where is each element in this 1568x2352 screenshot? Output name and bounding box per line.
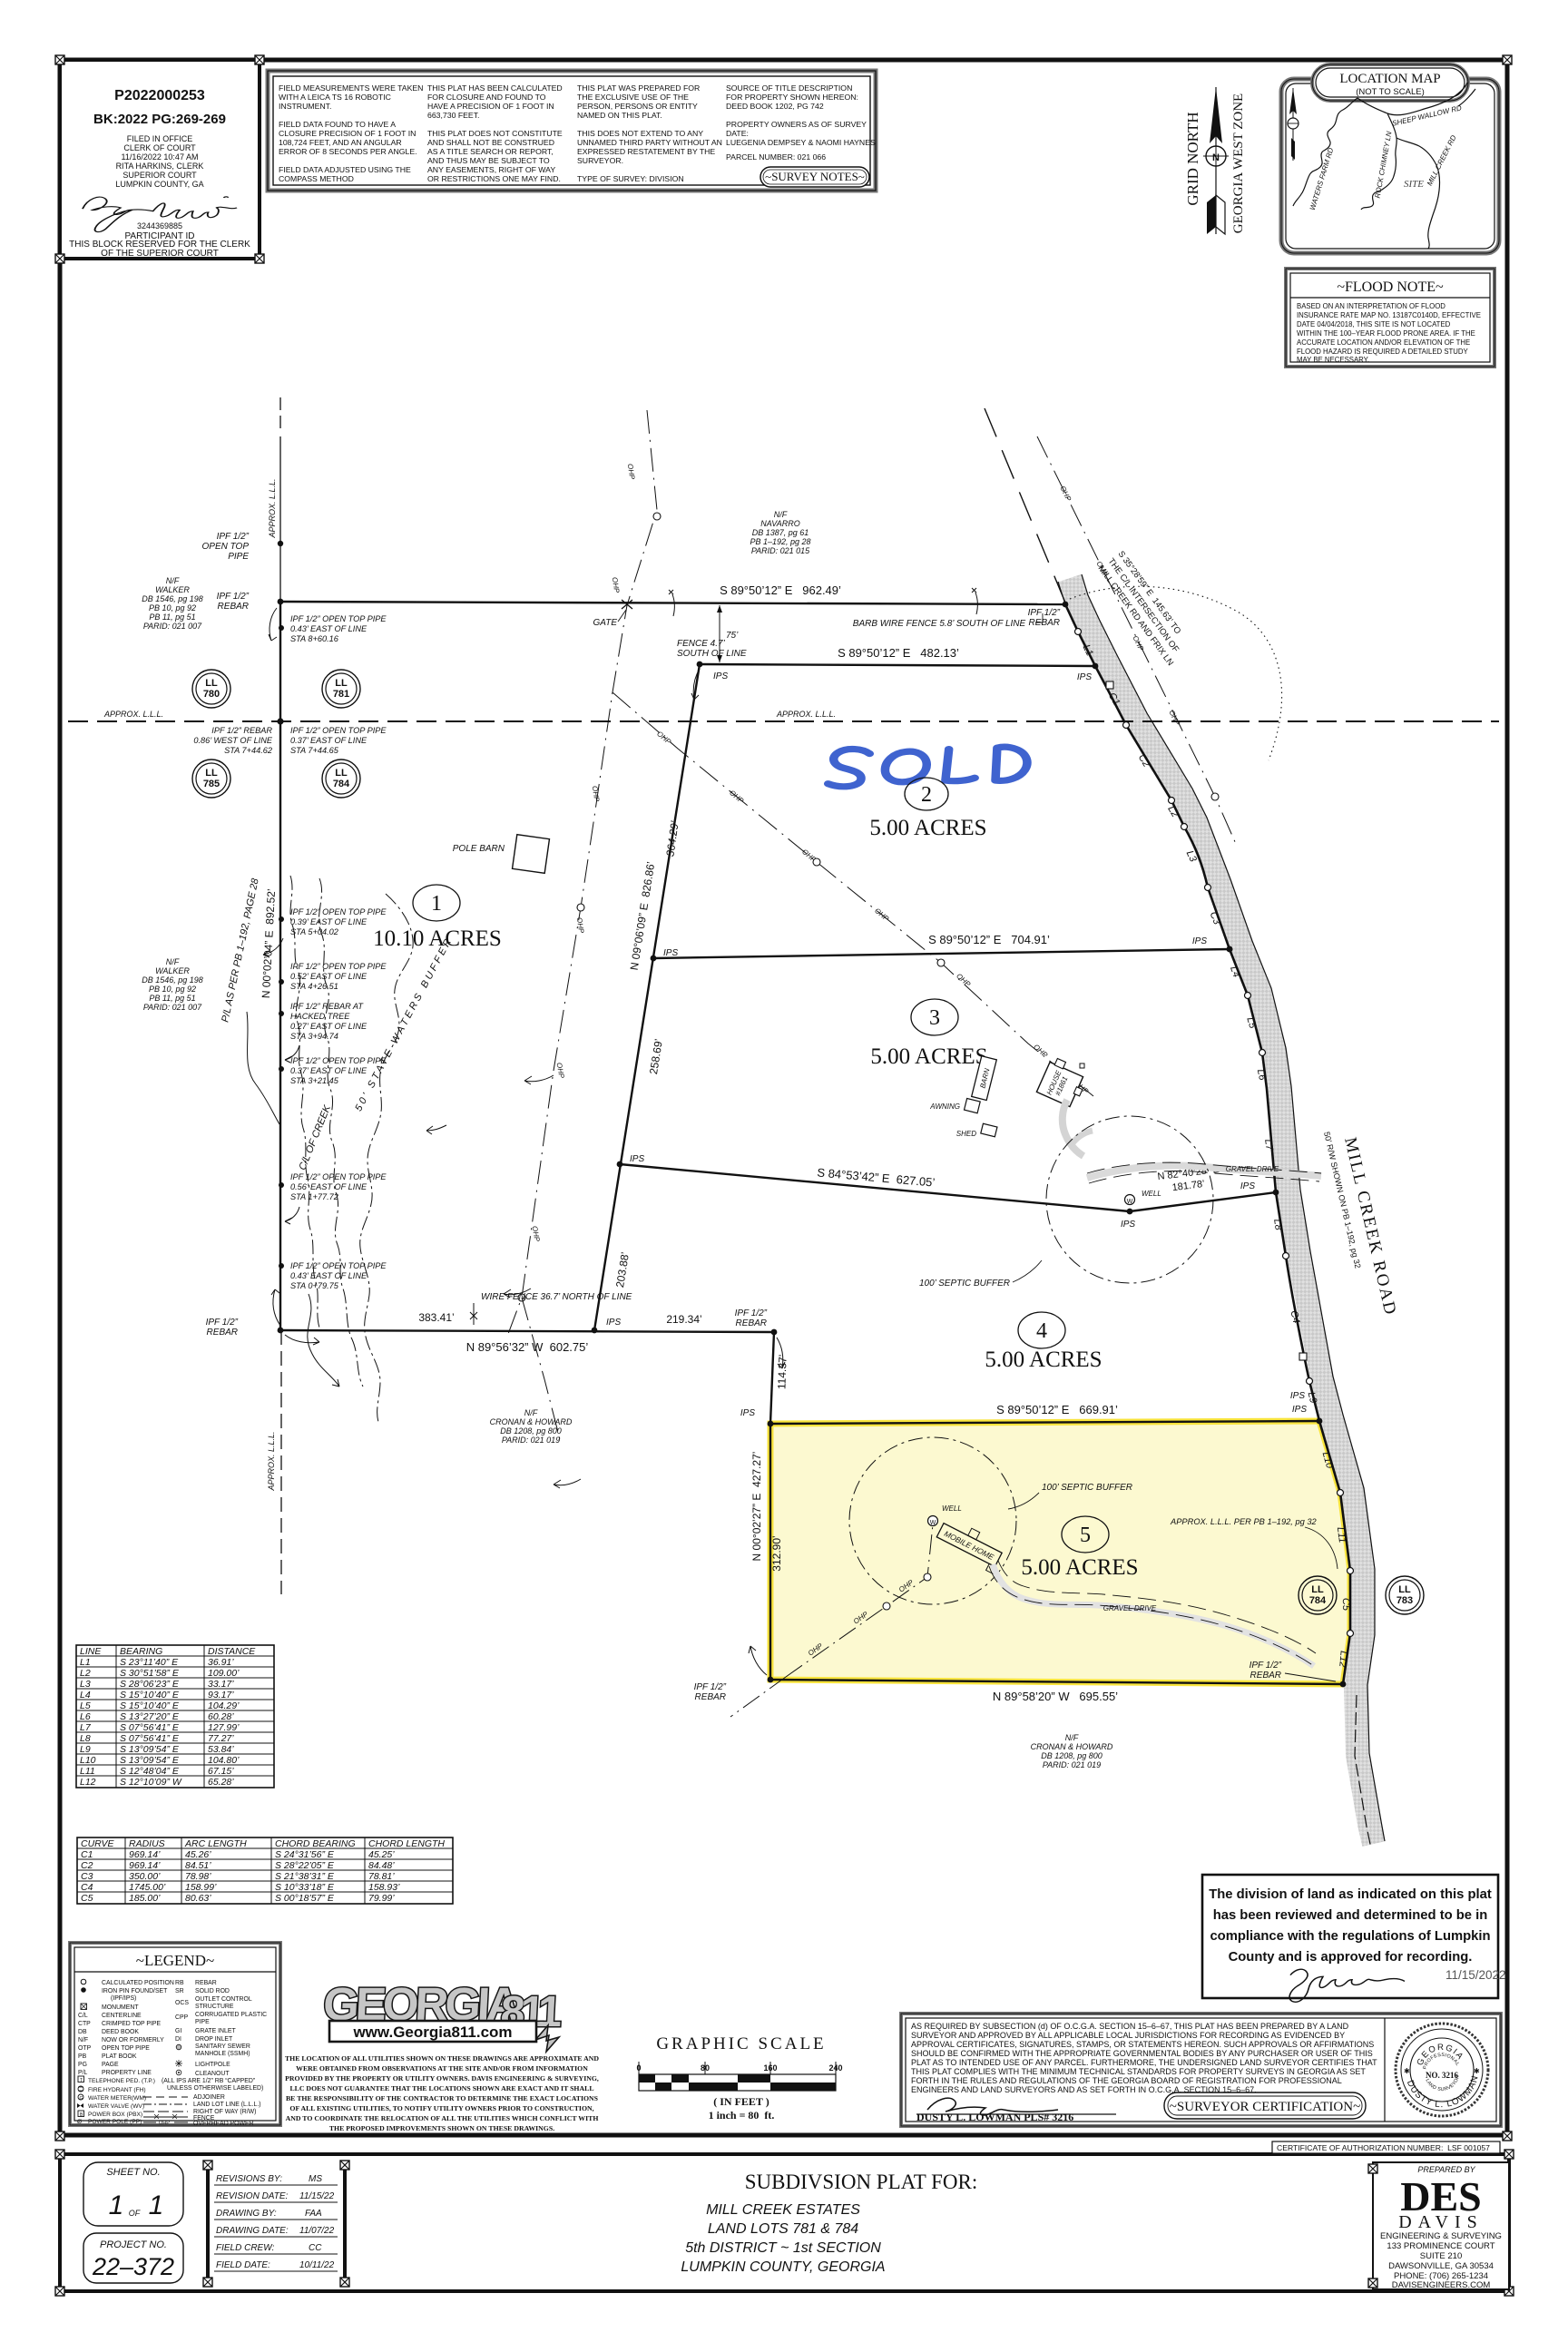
svg-text:PB: PB xyxy=(78,2053,87,2060)
svg-text:IPF 1/2”: IPF 1/2” xyxy=(1028,608,1061,618)
svg-text:~SURVEY NOTES~: ~SURVEY NOTES~ xyxy=(765,170,865,183)
svg-text:S 28°22’05” E: S 28°22’05” E xyxy=(275,1860,335,1871)
svg-text:0.37’ EAST OF LINE: 0.37’ EAST OF LINE xyxy=(290,736,367,745)
svg-text:CRONAN & HOWARD: CRONAN & HOWARD xyxy=(1031,1742,1113,1751)
svg-text:1: 1 xyxy=(109,2190,124,2220)
svg-text:DB 1208, pg 800: DB 1208, pg 800 xyxy=(500,1426,562,1436)
svg-text:0.37’ EAST OF LINE: 0.37’ EAST OF LINE xyxy=(290,1066,367,1075)
svg-text:IPS: IPS xyxy=(1192,936,1207,946)
svg-text:DAVISENGINEERS.COM: DAVISENGINEERS.COM xyxy=(1392,2280,1491,2290)
svg-text:STA 1+77.72: STA 1+77.72 xyxy=(290,1192,338,1201)
svg-text:C3: C3 xyxy=(81,1871,93,1882)
svg-text:SURVEYOR AND APPROVED BY ALL A: SURVEYOR AND APPROVED BY ALL APPLICABLE … xyxy=(911,2031,1345,2040)
svg-text:383.41’: 383.41’ xyxy=(418,1311,454,1324)
svg-text:C4: C4 xyxy=(81,1882,93,1893)
svg-text:PG: PG xyxy=(78,2062,87,2068)
svg-text:IPS: IPS xyxy=(1290,1391,1305,1401)
svg-text:11/16/2022 10:47 AM: 11/16/2022 10:47 AM xyxy=(122,152,199,162)
svg-text:APPROVAL CERTIFICATES, SIGNATU: APPROVAL CERTIFICATES, SIGNATURES, STAMP… xyxy=(911,2040,1374,2049)
svg-text:0.39’ EAST OF LINE: 0.39’ EAST OF LINE xyxy=(290,917,367,926)
svg-text:663,730 FEET.: 663,730 FEET. xyxy=(427,111,479,120)
svg-text:ADJOINER: ADJOINER xyxy=(193,2094,225,2101)
svg-text:CRIMPED TOP PIPE: CRIMPED TOP PIPE xyxy=(102,2021,162,2027)
svg-text:L2: L2 xyxy=(80,1668,91,1679)
svg-text:45.25’: 45.25’ xyxy=(368,1849,395,1860)
svg-text:78.98’: 78.98’ xyxy=(185,1871,211,1882)
svg-text:STA 0+79.75: STA 0+79.75 xyxy=(290,1281,339,1290)
svg-text:IPF 1/2”: IPF 1/2” xyxy=(217,532,250,542)
svg-text:STA 3+94.74: STA 3+94.74 xyxy=(290,1032,338,1041)
svg-text:158.99’: 158.99’ xyxy=(185,1882,217,1893)
svg-text:APPROX. L.L.L.: APPROX. L.L.L. xyxy=(776,710,836,719)
svg-text:IPF 1/2” OPEN TOP PIPE: IPF 1/2” OPEN TOP PIPE xyxy=(290,907,387,916)
svg-text:WITH A LEICA TS 16 ROBOTIC: WITH A LEICA TS 16 ROBOTIC xyxy=(279,93,391,102)
svg-text:UNLESS OTHERWISE LABELED): UNLESS OTHERWISE LABELED) xyxy=(167,2085,263,2092)
svg-text:STA 5+04.02: STA 5+04.02 xyxy=(290,927,338,936)
svg-text:185.00’: 185.00’ xyxy=(129,1893,161,1904)
svg-text:AND TO COORDINATE THE RELOCATI: AND TO COORDINATE THE RELOCATION OF ALL … xyxy=(286,2114,599,2122)
svg-text:SANITARY SEWER: SANITARY SEWER xyxy=(195,2043,250,2050)
svg-text:GRATE INLET: GRATE INLET xyxy=(195,2028,236,2034)
svg-text:THE LOCATION OF ALL UTILITIES: THE LOCATION OF ALL UTILITIES SHOWN ON T… xyxy=(285,2054,599,2063)
svg-text:S 30°51’58” E: S 30°51’58” E xyxy=(120,1668,180,1679)
svg-text:WATER VALVE (WV): WATER VALVE (WV) xyxy=(88,2103,144,2110)
svg-text:THIS DOES NOT EXTEND TO ANY: THIS DOES NOT EXTEND TO ANY xyxy=(577,129,703,138)
svg-text:GRAVEL DRIVE: GRAVEL DRIVE xyxy=(1226,1165,1279,1173)
svg-text:L6: L6 xyxy=(80,1711,91,1722)
svg-text:PB 10, pg 92: PB 10, pg 92 xyxy=(149,603,196,612)
svg-text:L11: L11 xyxy=(1335,1526,1347,1543)
svg-text:✱: ✱ xyxy=(1404,2067,1410,2075)
svg-text:CTP: CTP xyxy=(78,2021,91,2027)
svg-text:OVERHEAD POWER: OVERHEAD POWER xyxy=(193,2121,254,2127)
svg-text:LUMPKIN COUNTY, GEORGIA: LUMPKIN COUNTY, GEORGIA xyxy=(681,2259,885,2275)
svg-text:BE THE RESPONSIBILITY OF THE C: BE THE RESPONSIBILITY OF THE CONTRACTOR … xyxy=(286,2094,598,2102)
svg-text:FIRE HYDRANT (FH): FIRE HYDRANT (FH) xyxy=(88,2087,146,2093)
svg-text:10.10 ACRES: 10.10 ACRES xyxy=(373,926,502,951)
svg-text:ANY EASEMENTS, RIGHT OF WAY: ANY EASEMENTS, RIGHT OF WAY xyxy=(427,165,555,174)
svg-text:~LEGEND~: ~LEGEND~ xyxy=(136,1952,214,1969)
svg-text:SITE: SITE xyxy=(1404,179,1424,190)
svg-text:AND SHALL NOT BE CONSTRUED: AND SHALL NOT BE CONSTRUED xyxy=(427,138,554,147)
svg-text:PARID: 021 007: PARID: 021 007 xyxy=(143,622,202,631)
svg-text:EXPRESSED RESTATEMENT BY THE: EXPRESSED RESTATEMENT BY THE xyxy=(577,147,715,156)
svg-text:1: 1 xyxy=(431,892,442,916)
svg-text:CURVE: CURVE xyxy=(81,1838,115,1849)
svg-text:APPROX. L.L.L.: APPROX. L.L.L. xyxy=(103,710,163,719)
svg-text:POWER BOX (PBX): POWER BOX (PBX) xyxy=(88,2112,142,2118)
svg-text:36.91’: 36.91’ xyxy=(208,1657,234,1668)
svg-text:11/07/22: 11/07/22 xyxy=(299,2226,335,2236)
svg-text:TELEPHONE PED. (T.P.): TELEPHONE PED. (T.P.) xyxy=(88,2078,155,2084)
svg-text:785: 785 xyxy=(203,779,220,789)
svg-text:REBAR: REBAR xyxy=(207,1328,238,1338)
svg-text:LUEGENIA DEMPSEY & NAOMI HAYNE: LUEGENIA DEMPSEY & NAOMI HAYNES xyxy=(726,138,876,147)
svg-text:GATE: GATE xyxy=(593,618,618,628)
svg-text:(NOT TO SCALE): (NOT TO SCALE) xyxy=(1356,87,1425,97)
svg-text:✱: ✱ xyxy=(1474,2067,1480,2075)
svg-text:L9: L9 xyxy=(80,1744,91,1755)
svg-text:DI: DI xyxy=(175,2036,181,2043)
svg-text:WATER METER(WM): WATER METER(WM) xyxy=(88,2095,146,2102)
svg-text:S 00°18’57” E: S 00°18’57” E xyxy=(275,1893,335,1904)
svg-text:LL: LL xyxy=(335,678,348,689)
svg-text:11/15/2022: 11/15/2022 xyxy=(1445,1968,1506,1982)
svg-text:GEORGIA WEST ZONE: GEORGIA WEST ZONE xyxy=(1231,93,1246,233)
svg-text:P2022000253: P2022000253 xyxy=(114,88,205,103)
svg-text:WELL: WELL xyxy=(1142,1190,1161,1198)
svg-text:S 13°09’54” E: S 13°09’54” E xyxy=(120,1744,180,1755)
svg-text:IPF 1/2” REBAR AT: IPF 1/2” REBAR AT xyxy=(290,1002,364,1011)
svg-text:IPF 1/2” REBAR: IPF 1/2” REBAR xyxy=(211,726,272,735)
svg-text:( IN FEET ): ( IN FEET ) xyxy=(713,2095,769,2108)
svg-text:RADIUS: RADIUS xyxy=(129,1838,165,1849)
svg-text:ARC LENGTH: ARC LENGTH xyxy=(184,1838,247,1849)
svg-text:S 23°11’40” E: S 23°11’40” E xyxy=(120,1657,179,1668)
svg-text:S 89°50’12” E 669.91’: S 89°50’12” E 669.91’ xyxy=(996,1403,1118,1416)
svg-text:PIPE: PIPE xyxy=(195,2019,210,2025)
svg-text:BARB WIRE FENCE 5.8’ SOUTH OF: BARB WIRE FENCE 5.8’ SOUTH OF LINE xyxy=(853,619,1026,629)
svg-text:compliance with the regulation: compliance with the regulations of Lumpk… xyxy=(1210,1929,1490,1944)
svg-text:22–372: 22–372 xyxy=(92,2253,174,2280)
svg-text:S 28°06’23” E: S 28°06’23” E xyxy=(120,1679,180,1690)
svg-text:MS: MS xyxy=(309,2174,322,2184)
svg-text:784: 784 xyxy=(333,779,350,789)
svg-text:SR: SR xyxy=(175,1988,184,1994)
svg-text:THE PROPOSED IMPROVEMENTS SHOW: THE PROPOSED IMPROVEMENTS SHOWN ON THESE… xyxy=(329,2124,554,2132)
svg-text:LUMPKIN COUNTY, GA: LUMPKIN COUNTY, GA xyxy=(115,180,203,189)
svg-text:78.81’: 78.81’ xyxy=(368,1871,395,1882)
svg-text:PROVIDED BY THE PROPERTY OR UT: PROVIDED BY THE PROPERTY OR UTILITY OWNE… xyxy=(285,2074,599,2082)
svg-text:FLOOD HAZARD IS REQUIRED A DET: FLOOD HAZARD IS REQUIRED A DETAILED STUD… xyxy=(1297,348,1469,356)
svg-text:1745.00’: 1745.00’ xyxy=(129,1882,166,1893)
svg-text:G: G xyxy=(80,2096,83,2102)
svg-text:100’ SEPTIC BUFFER: 100’ SEPTIC BUFFER xyxy=(919,1279,1010,1289)
svg-text:DUSTY L. LOWMAN PLS# 3216: DUSTY L. LOWMAN PLS# 3216 xyxy=(916,2111,1073,2123)
svg-text:L8: L8 xyxy=(80,1733,91,1744)
svg-text:REVISIONS BY:: REVISIONS BY: xyxy=(216,2174,282,2184)
svg-text:CENTERLINE: CENTERLINE xyxy=(102,2013,142,2019)
svg-text:AS REQUIRED BY SUBSECTION (d): AS REQUIRED BY SUBSECTION (d) OF O.C.G.A… xyxy=(911,2022,1349,2031)
svg-text:N/F: N/F xyxy=(774,510,788,519)
svg-text:L12: L12 xyxy=(1337,1651,1349,1668)
svg-text:N/F: N/F xyxy=(78,2037,88,2043)
svg-text:GI: GI xyxy=(175,2028,181,2034)
svg-text:S 13°09’54” E: S 13°09’54” E xyxy=(120,1755,180,1766)
svg-text:0.52’ EAST OF LINE: 0.52’ EAST OF LINE xyxy=(290,972,367,981)
svg-text:DEED BOOK: DEED BOOK xyxy=(102,2029,139,2035)
svg-text:S 24°31’56” E: S 24°31’56” E xyxy=(275,1849,335,1860)
svg-text:DAVIS: DAVIS xyxy=(1398,2212,1484,2232)
svg-text:IPS: IPS xyxy=(663,948,678,958)
svg-text:S 89°50’12” E 704.91’: S 89°50’12” E 704.91’ xyxy=(928,933,1050,946)
svg-text:SUITE 210: SUITE 210 xyxy=(1420,2251,1462,2261)
svg-text:COMPASS METHOD: COMPASS METHOD xyxy=(279,174,354,183)
svg-text:WITHIN THE 100–YEAR FLOOD PRON: WITHIN THE 100–YEAR FLOOD PRONE AREA. IF… xyxy=(1297,329,1475,338)
svg-text:OHP: OHP xyxy=(159,2121,170,2126)
svg-text:104.29’: 104.29’ xyxy=(208,1700,240,1711)
svg-text:REBAR: REBAR xyxy=(1029,618,1060,628)
svg-text:84.51’: 84.51’ xyxy=(185,1860,211,1871)
svg-text:S 89°50’12” E 962.49’: S 89°50’12” E 962.49’ xyxy=(720,583,841,597)
svg-text:ERROR OF 8 SECONDS PER ANGLE.: ERROR OF 8 SECONDS PER ANGLE. xyxy=(279,147,417,156)
svg-text:S 10°33’18” E: S 10°33’18” E xyxy=(275,1882,335,1893)
svg-text:BEARING: BEARING xyxy=(120,1646,162,1657)
svg-text:PLAT BOOK: PLAT BOOK xyxy=(102,2053,137,2060)
svg-text:IPF 1/2” OPEN TOP PIPE: IPF 1/2” OPEN TOP PIPE xyxy=(290,614,387,623)
svg-text:IPF 1/2” OPEN TOP PIPE: IPF 1/2” OPEN TOP PIPE xyxy=(290,726,387,735)
svg-text:114.37’: 114.37’ xyxy=(775,1354,789,1389)
svg-text:S 21°38’31” E: S 21°38’31” E xyxy=(275,1871,335,1882)
svg-text:UNNAMED THIRD PARTY WITHOUT AN: UNNAMED THIRD PARTY WITHOUT AN xyxy=(577,138,722,147)
svg-text:STA 3+21.45: STA 3+21.45 xyxy=(290,1076,339,1085)
svg-text:ACCURATE LOCATION AND/OR ELEVA: ACCURATE LOCATION AND/OR ELEVATION OF TH… xyxy=(1297,338,1470,347)
svg-text:PB 11, pg 51: PB 11, pg 51 xyxy=(149,994,195,1003)
svg-text:W: W xyxy=(1127,1199,1133,1205)
svg-text:969.14’: 969.14’ xyxy=(129,1849,161,1860)
svg-text:104.80’: 104.80’ xyxy=(208,1755,240,1766)
svg-text:POLE BARN: POLE BARN xyxy=(453,844,505,854)
svg-text:FOR PROPERTY SHOWN HEREON:: FOR PROPERTY SHOWN HEREON: xyxy=(726,93,858,102)
svg-text:80.63’: 80.63’ xyxy=(185,1893,211,1904)
svg-text:FIELD DATA ADJUSTED USING THE: FIELD DATA ADJUSTED USING THE xyxy=(279,165,411,174)
svg-text:County and is approved for rec: County and is approved for recording. xyxy=(1229,1950,1473,1965)
svg-text:THIS PLAT COMPLIES WITH THE MI: THIS PLAT COMPLIES WITH THE MINIMUM TECH… xyxy=(911,2067,1366,2076)
svg-text:PARID: 021 019: PARID: 021 019 xyxy=(1043,1760,1101,1769)
svg-text:5.00 ACRES: 5.00 ACRES xyxy=(1021,1555,1138,1580)
svg-text:SHEET NO.: SHEET NO. xyxy=(106,2167,160,2178)
svg-text:1: 1 xyxy=(149,2190,164,2220)
svg-text:N/F: N/F xyxy=(166,576,180,585)
svg-text:2: 2 xyxy=(921,783,932,807)
svg-text:STA 7+44.62: STA 7+44.62 xyxy=(224,746,272,755)
svg-text:PLAT AS TO INTENDED USE OF ANY: PLAT AS TO INTENDED USE OF ANY PARCEL. F… xyxy=(911,2058,1377,2067)
svg-text:OUTLET CONTROL: OUTLET CONTROL xyxy=(195,1996,252,2003)
svg-text:LLC DOES NOT GUARANTEE THAT TH: LLC DOES NOT GUARANTEE THAT THE LOCATION… xyxy=(289,2084,593,2092)
svg-text:C/L: C/L xyxy=(78,2013,88,2019)
svg-text:IPS: IPS xyxy=(1240,1181,1255,1191)
svg-text:IPS: IPS xyxy=(1077,672,1092,682)
svg-text:NO. 3216: NO. 3216 xyxy=(1426,2071,1459,2080)
svg-text:CPP: CPP xyxy=(175,2014,189,2021)
svg-text:PERSON, PERSONS OR ENTITY: PERSON, PERSONS OR ENTITY xyxy=(577,102,698,111)
svg-text:REVISION DATE:: REVISION DATE: xyxy=(216,2191,288,2201)
svg-text:~FLOOD NOTE~: ~FLOOD NOTE~ xyxy=(1337,279,1444,295)
svg-text:CC: CC xyxy=(309,2243,322,2253)
svg-text:OF ALL EXISTING UTILITIES, TO: OF ALL EXISTING UTILITIES, TO NOTIFY UTI… xyxy=(289,2104,593,2112)
svg-text:N: N xyxy=(1212,152,1220,163)
svg-text:HACKED TREE: HACKED TREE xyxy=(290,1012,350,1021)
svg-text:OTP: OTP xyxy=(78,2045,92,2052)
svg-text:CRONAN & HOWARD: CRONAN & HOWARD xyxy=(490,1417,573,1426)
svg-text:CALCULATED POSITION: CALCULATED POSITION xyxy=(102,1980,174,1986)
svg-text:783: 783 xyxy=(1396,1595,1413,1606)
svg-text:SHOULD BE CONFIRMED WITH THE A: SHOULD BE CONFIRMED WITH THE APPROPRIATE… xyxy=(911,2049,1373,2058)
svg-text:FORTH IN THE RULES AND REGULAT: FORTH IN THE RULES AND REGULATIONS OF TH… xyxy=(911,2076,1342,2085)
svg-text:79.99’: 79.99’ xyxy=(368,1893,395,1904)
svg-text:GRAPHIC SCALE: GRAPHIC SCALE xyxy=(656,2034,826,2053)
svg-text:N/F: N/F xyxy=(524,1408,538,1417)
svg-text:IPF 1/2”: IPF 1/2” xyxy=(735,1308,768,1318)
svg-text:S 12°10’09” W: S 12°10’09” W xyxy=(120,1777,182,1788)
svg-text:AS A TITLE SEARCH OR REPORT,: AS A TITLE SEARCH OR REPORT, xyxy=(427,147,554,156)
svg-text:158.93’: 158.93’ xyxy=(368,1882,400,1893)
svg-text:L5: L5 xyxy=(80,1700,91,1711)
svg-text:10/11/22: 10/11/22 xyxy=(299,2260,335,2270)
svg-text:PROJECT NO.: PROJECT NO. xyxy=(100,2239,167,2250)
svg-text:FIELD CREW:: FIELD CREW: xyxy=(216,2243,275,2253)
svg-text:S 15°10’40” E: S 15°10’40” E xyxy=(120,1690,180,1700)
svg-text:DAWSONVILLE, GA 30534: DAWSONVILLE, GA 30534 xyxy=(1388,2261,1494,2271)
svg-text:5th DISTRICT ~ 1st SECTION: 5th DISTRICT ~ 1st SECTION xyxy=(685,2240,881,2256)
svg-text:FILED IN OFFICE: FILED IN OFFICE xyxy=(127,134,193,143)
svg-text:L7: L7 xyxy=(80,1722,92,1733)
svg-text:11/15/22: 11/15/22 xyxy=(299,2191,335,2201)
svg-text:OCS: OCS xyxy=(175,2000,189,2006)
svg-text:THIS PLAT DOES NOT CONSTITUTE: THIS PLAT DOES NOT CONSTITUTE xyxy=(427,129,563,138)
svg-text:0.86’ WEST OF LINE: 0.86’ WEST OF LINE xyxy=(193,736,273,745)
svg-text:WALKER: WALKER xyxy=(155,585,190,594)
svg-text:IRON PIN FOUND/SET: IRON PIN FOUND/SET xyxy=(102,1988,168,1994)
svg-text:IPF 1/2” OPEN TOP PIPE: IPF 1/2” OPEN TOP PIPE xyxy=(290,1261,387,1270)
svg-text:S 13°27’20” E: S 13°27’20” E xyxy=(120,1711,180,1722)
svg-text:DATE:: DATE: xyxy=(726,129,749,138)
svg-text:219.34’: 219.34’ xyxy=(666,1313,701,1326)
svg-text:IPS: IPS xyxy=(606,1318,621,1328)
svg-text:5: 5 xyxy=(1080,1524,1091,1547)
svg-text:53.84’: 53.84’ xyxy=(208,1744,234,1755)
svg-text:LINE: LINE xyxy=(80,1646,102,1657)
svg-text:STA 4+26.51: STA 4+26.51 xyxy=(290,982,338,991)
svg-text:IPS: IPS xyxy=(740,1408,755,1418)
svg-text:CLERK OF COURT: CLERK OF COURT xyxy=(123,143,196,152)
svg-text:IPF 1/2” OPEN TOP PIPE: IPF 1/2” OPEN TOP PIPE xyxy=(290,1172,387,1181)
svg-text:WERE OBTAINED FROM OBSERVATION: WERE OBTAINED FROM OBSERVATIONS AT THE S… xyxy=(296,2064,588,2073)
svg-text:LL: LL xyxy=(1311,1584,1324,1595)
svg-text:SUPERIOR COURT: SUPERIOR COURT xyxy=(122,171,197,180)
svg-text:S 07°56’41” E: S 07°56’41” E xyxy=(120,1733,180,1744)
svg-text:L4: L4 xyxy=(80,1690,91,1700)
svg-text:LL: LL xyxy=(1398,1584,1411,1595)
svg-text:BASED ON AN INTERPRETATION OF: BASED ON AN INTERPRETATION OF FLOOD xyxy=(1297,302,1445,310)
svg-text:DB 1546, pg 198: DB 1546, pg 198 xyxy=(142,594,203,603)
svg-text:0.56’ EAST OF LINE: 0.56’ EAST OF LINE xyxy=(290,1182,367,1191)
svg-text:REBAR: REBAR xyxy=(218,602,249,612)
svg-text:(IPF/IPS): (IPF/IPS) xyxy=(111,1995,136,2002)
svg-text:INSTRUMENT.: INSTRUMENT. xyxy=(279,102,331,111)
svg-text:C5: C5 xyxy=(81,1893,93,1904)
svg-text:IPF 1/2”: IPF 1/2” xyxy=(1249,1661,1282,1671)
svg-text:350.00’: 350.00’ xyxy=(129,1871,161,1882)
svg-text:PARID: 021 019: PARID: 021 019 xyxy=(502,1436,560,1445)
svg-text:STA 7+44.65: STA 7+44.65 xyxy=(290,746,339,755)
svg-text:INSURANCE RATE MAP NO. 13187C0: INSURANCE RATE MAP NO. 13187C0140D, EFFE… xyxy=(1297,311,1481,319)
svg-text:SHED: SHED xyxy=(956,1130,976,1138)
svg-text:GRAVEL DRIVE: GRAVEL DRIVE xyxy=(1103,1604,1157,1612)
svg-text:MAY BE NECESSARY.: MAY BE NECESSARY. xyxy=(1297,356,1369,364)
svg-text:0.27’ EAST OF LINE: 0.27’ EAST OF LINE xyxy=(290,1022,367,1031)
svg-text:OF THE SUPERIOR COURT: OF THE SUPERIOR COURT xyxy=(101,249,219,259)
svg-text:N 89°56’32” W 602.75’: N 89°56’32” W 602.75’ xyxy=(466,1340,589,1354)
svg-text:PARID: 021 007: PARID: 021 007 xyxy=(143,1003,202,1012)
svg-text:NAVARRO: NAVARRO xyxy=(760,519,800,528)
svg-text:DB 1387, pg 61: DB 1387, pg 61 xyxy=(752,528,809,537)
svg-text:Ø: Ø xyxy=(77,2119,82,2125)
svg-text:781: 781 xyxy=(333,689,349,700)
svg-text:PAGE: PAGE xyxy=(102,2062,119,2068)
svg-text:DROP INLET: DROP INLET xyxy=(195,2036,233,2043)
svg-text:CORRUGATED PLASTIC: CORRUGATED PLASTIC xyxy=(195,2012,267,2018)
svg-text:969.14’: 969.14’ xyxy=(129,1860,161,1871)
svg-text:DISTANCE: DISTANCE xyxy=(208,1646,256,1657)
svg-text:5.00 ACRES: 5.00 ACRES xyxy=(870,1044,987,1069)
svg-text:PARID: 021 015: PARID: 021 015 xyxy=(751,546,810,555)
svg-text:RB: RB xyxy=(175,1980,184,1986)
svg-text:IPS: IPS xyxy=(630,1154,644,1164)
svg-text:SOUTH OF LINE: SOUTH OF LINE xyxy=(677,649,747,659)
svg-text:MANHOLE (SSMH): MANHOLE (SSMH) xyxy=(195,2051,250,2057)
svg-text:FENCE 4.7’: FENCE 4.7’ xyxy=(677,639,726,649)
svg-text:DRAWING BY:: DRAWING BY: xyxy=(216,2209,277,2219)
svg-text:T: T xyxy=(80,2078,83,2083)
svg-text:HAVE A PRECISION OF 1 FOOT IN: HAVE A PRECISION OF 1 FOOT IN xyxy=(427,102,554,111)
svg-text:APPROX. L.L.L.: APPROX. L.L.L. xyxy=(267,1431,276,1491)
svg-text:PROPERTY LINE: PROPERTY LINE xyxy=(102,2070,152,2076)
svg-text:CHORD LENGTH: CHORD LENGTH xyxy=(368,1838,445,1849)
svg-text:SOURCE OF TITLE DESCRIPTION: SOURCE OF TITLE DESCRIPTION xyxy=(726,83,852,93)
svg-text:AWNING: AWNING xyxy=(929,1102,960,1111)
svg-text:www.Georgia811.com: www.Georgia811.com xyxy=(352,2024,512,2041)
svg-text:IPF 1/2”: IPF 1/2” xyxy=(217,592,250,602)
svg-text:W: W xyxy=(930,1520,936,1526)
svg-text:77.27’: 77.27’ xyxy=(208,1733,234,1744)
svg-text:1 inch = 80 ft.: 1 inch = 80 ft. xyxy=(709,2109,775,2122)
svg-text:PIPE: PIPE xyxy=(228,552,249,562)
svg-text:CLOSURE PRECISION OF 1 FOOT IN: CLOSURE PRECISION OF 1 FOOT IN xyxy=(279,129,416,138)
svg-text:OPEN TOP PIPE: OPEN TOP PIPE xyxy=(102,2045,150,2052)
svg-text:4: 4 xyxy=(1036,1319,1047,1343)
svg-text:PB 1–192, pg 28: PB 1–192, pg 28 xyxy=(750,537,810,546)
svg-text:WIRE FENCE 36.7’ NORTH OF LINE: WIRE FENCE 36.7’ NORTH OF LINE xyxy=(481,1292,632,1302)
svg-text:REBAR: REBAR xyxy=(736,1318,767,1328)
svg-text:0.43’ EAST OF LINE: 0.43’ EAST OF LINE xyxy=(290,624,367,633)
svg-text:312.90’: 312.90’ xyxy=(770,1535,783,1571)
svg-text:C2: C2 xyxy=(81,1860,93,1871)
svg-text:REBAR: REBAR xyxy=(695,1692,726,1702)
svg-text:IPF 1/2” OPEN TOP PIPE: IPF 1/2” OPEN TOP PIPE xyxy=(290,1056,387,1065)
svg-text:STRUCTURE: STRUCTURE xyxy=(195,2004,234,2010)
svg-text:L1: L1 xyxy=(80,1657,91,1668)
svg-text:DB 1546, pg 198: DB 1546, pg 198 xyxy=(142,975,203,985)
svg-text:DB: DB xyxy=(78,2029,87,2035)
svg-text:RITA HARKINS, CLERK: RITA HARKINS, CLERK xyxy=(116,162,204,171)
svg-text:SOLID ROD: SOLID ROD xyxy=(195,1988,230,1994)
svg-text:LAND LOTS 781 & 784: LAND LOTS 781 & 784 xyxy=(708,2221,858,2237)
svg-text:REBAR: REBAR xyxy=(1250,1671,1281,1681)
svg-text:THIS PLAT WAS PREPARED FOR: THIS PLAT WAS PREPARED FOR xyxy=(577,83,700,93)
svg-text:OR RESTRICTIONS ONE MAY FIND.: OR RESTRICTIONS ONE MAY FIND. xyxy=(427,174,561,183)
svg-text:109.00’: 109.00’ xyxy=(208,1668,240,1679)
svg-text:93.17’: 93.17’ xyxy=(208,1690,234,1700)
svg-text:DRAWING DATE:: DRAWING DATE: xyxy=(216,2226,289,2236)
svg-text:784: 784 xyxy=(1309,1595,1327,1606)
svg-text:SURVEYOR.: SURVEYOR. xyxy=(577,156,623,165)
svg-text:FIELD MEASUREMENTS WERE TAKEN: FIELD MEASUREMENTS WERE TAKEN xyxy=(279,83,423,93)
svg-text:75’: 75’ xyxy=(726,631,739,641)
svg-text:N/F: N/F xyxy=(1065,1733,1079,1742)
svg-text:RIGHT OF WAY (R/W): RIGHT OF WAY (R/W) xyxy=(193,2109,256,2115)
svg-text:PARCEL NUMBER: 021 066: PARCEL NUMBER: 021 066 xyxy=(726,152,826,162)
